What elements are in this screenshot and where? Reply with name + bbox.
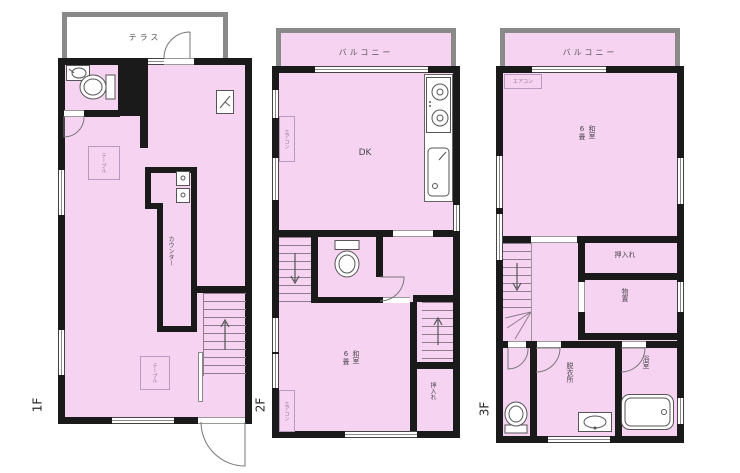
door-swing-icon: [380, 275, 406, 303]
door-swing-icon: [507, 348, 531, 372]
window: [532, 66, 606, 73]
stairs-up: [203, 293, 246, 376]
stairs-up: [422, 302, 453, 362]
balcony-label: バルコニー: [339, 47, 394, 58]
window: [453, 205, 460, 231]
terrace-door-icon: [162, 30, 192, 60]
window: [345, 431, 417, 438]
window: [548, 436, 610, 443]
washitsu-room-label: 和室 6畳: [576, 125, 598, 147]
monooki-room-label: 物置: [620, 288, 630, 312]
window: [496, 214, 503, 260]
window: [272, 158, 279, 200]
aircon-box: エアコン: [279, 390, 295, 432]
up-arrow-icon: [432, 315, 444, 349]
wall: [578, 273, 677, 280]
counter-wall: [191, 167, 197, 332]
sliding-doorway: [531, 236, 577, 243]
datsuiishitsu-room-label: 脱衣所: [565, 362, 575, 392]
balcony-label: バルコニー: [563, 47, 618, 58]
wall: [376, 237, 383, 277]
door-swing-icon: [63, 116, 87, 140]
window: [112, 417, 174, 424]
terrace: テラス: [62, 12, 228, 58]
counter-label: カウンター: [166, 236, 175, 296]
wall: [433, 230, 453, 237]
table-box: テーブル: [140, 356, 170, 390]
floor-3f-label: 3F: [477, 402, 491, 417]
doorway: [622, 341, 646, 348]
table-box: テーブル: [88, 146, 120, 180]
wall: [413, 295, 453, 302]
wall: [410, 302, 417, 431]
window: [272, 354, 279, 388]
aircon-box: エアコン: [504, 74, 542, 89]
sliding-doorway: [393, 230, 433, 237]
window: [496, 156, 503, 208]
wall: [417, 362, 453, 369]
toilet-icon: [502, 400, 530, 434]
counter-wall: [157, 326, 197, 332]
sliding-door: [198, 352, 203, 402]
terrace-label: テラス: [129, 32, 162, 43]
winder-stairs-icon: [503, 310, 535, 341]
aircon-box: エアコン: [279, 116, 295, 162]
water-heater-icon: [216, 90, 234, 114]
window: [58, 330, 65, 375]
door-swing-icon: [536, 348, 562, 374]
stove-icon: [426, 77, 451, 133]
down-arrow-icon: [511, 260, 523, 296]
wall: [311, 237, 318, 303]
wall: [503, 236, 677, 243]
window: [677, 282, 684, 312]
down-arrow-icon: [289, 249, 301, 289]
toilet-icon: [78, 70, 116, 104]
window: [315, 66, 428, 73]
floorplan-canvas: テラス: [0, 0, 740, 473]
wall: [279, 230, 393, 237]
doorway: [537, 341, 561, 348]
window: [677, 158, 684, 204]
counter-wall: [157, 203, 163, 332]
window: [272, 318, 279, 352]
washitsu-room-label: 和室 6畳: [340, 350, 362, 372]
sliding-doorway: [578, 282, 585, 312]
oshiire-room-label: 押入れ: [428, 382, 437, 410]
kitchen-sink-icon: [426, 144, 451, 200]
doorway: [508, 341, 526, 348]
wall: [578, 333, 677, 340]
stairs-down: [279, 237, 311, 302]
floor-2f-label: 2F: [253, 398, 267, 413]
window: [272, 90, 279, 118]
wall: [84, 110, 120, 117]
washbasin-icon: [578, 412, 612, 432]
wall: [140, 58, 148, 148]
dk-room-label: DK: [350, 148, 380, 158]
door-swing-icon: [621, 348, 647, 374]
up-arrow-icon: [218, 316, 232, 354]
stairs-down: [503, 243, 531, 313]
wall: [311, 297, 383, 303]
kitchen-sink-icon: [176, 188, 190, 203]
oshiire-room-label: 押入れ: [605, 250, 645, 260]
window: [58, 170, 65, 215]
wall: [196, 286, 245, 293]
kitchen-sink-icon: [176, 171, 190, 186]
floor-1f-label: 1F: [30, 398, 44, 413]
terrace-doorway: [164, 58, 194, 65]
bathtub-icon: [621, 394, 674, 430]
toilet-icon: [331, 240, 363, 280]
entrance-door-icon: [198, 420, 246, 468]
window: [677, 398, 684, 424]
